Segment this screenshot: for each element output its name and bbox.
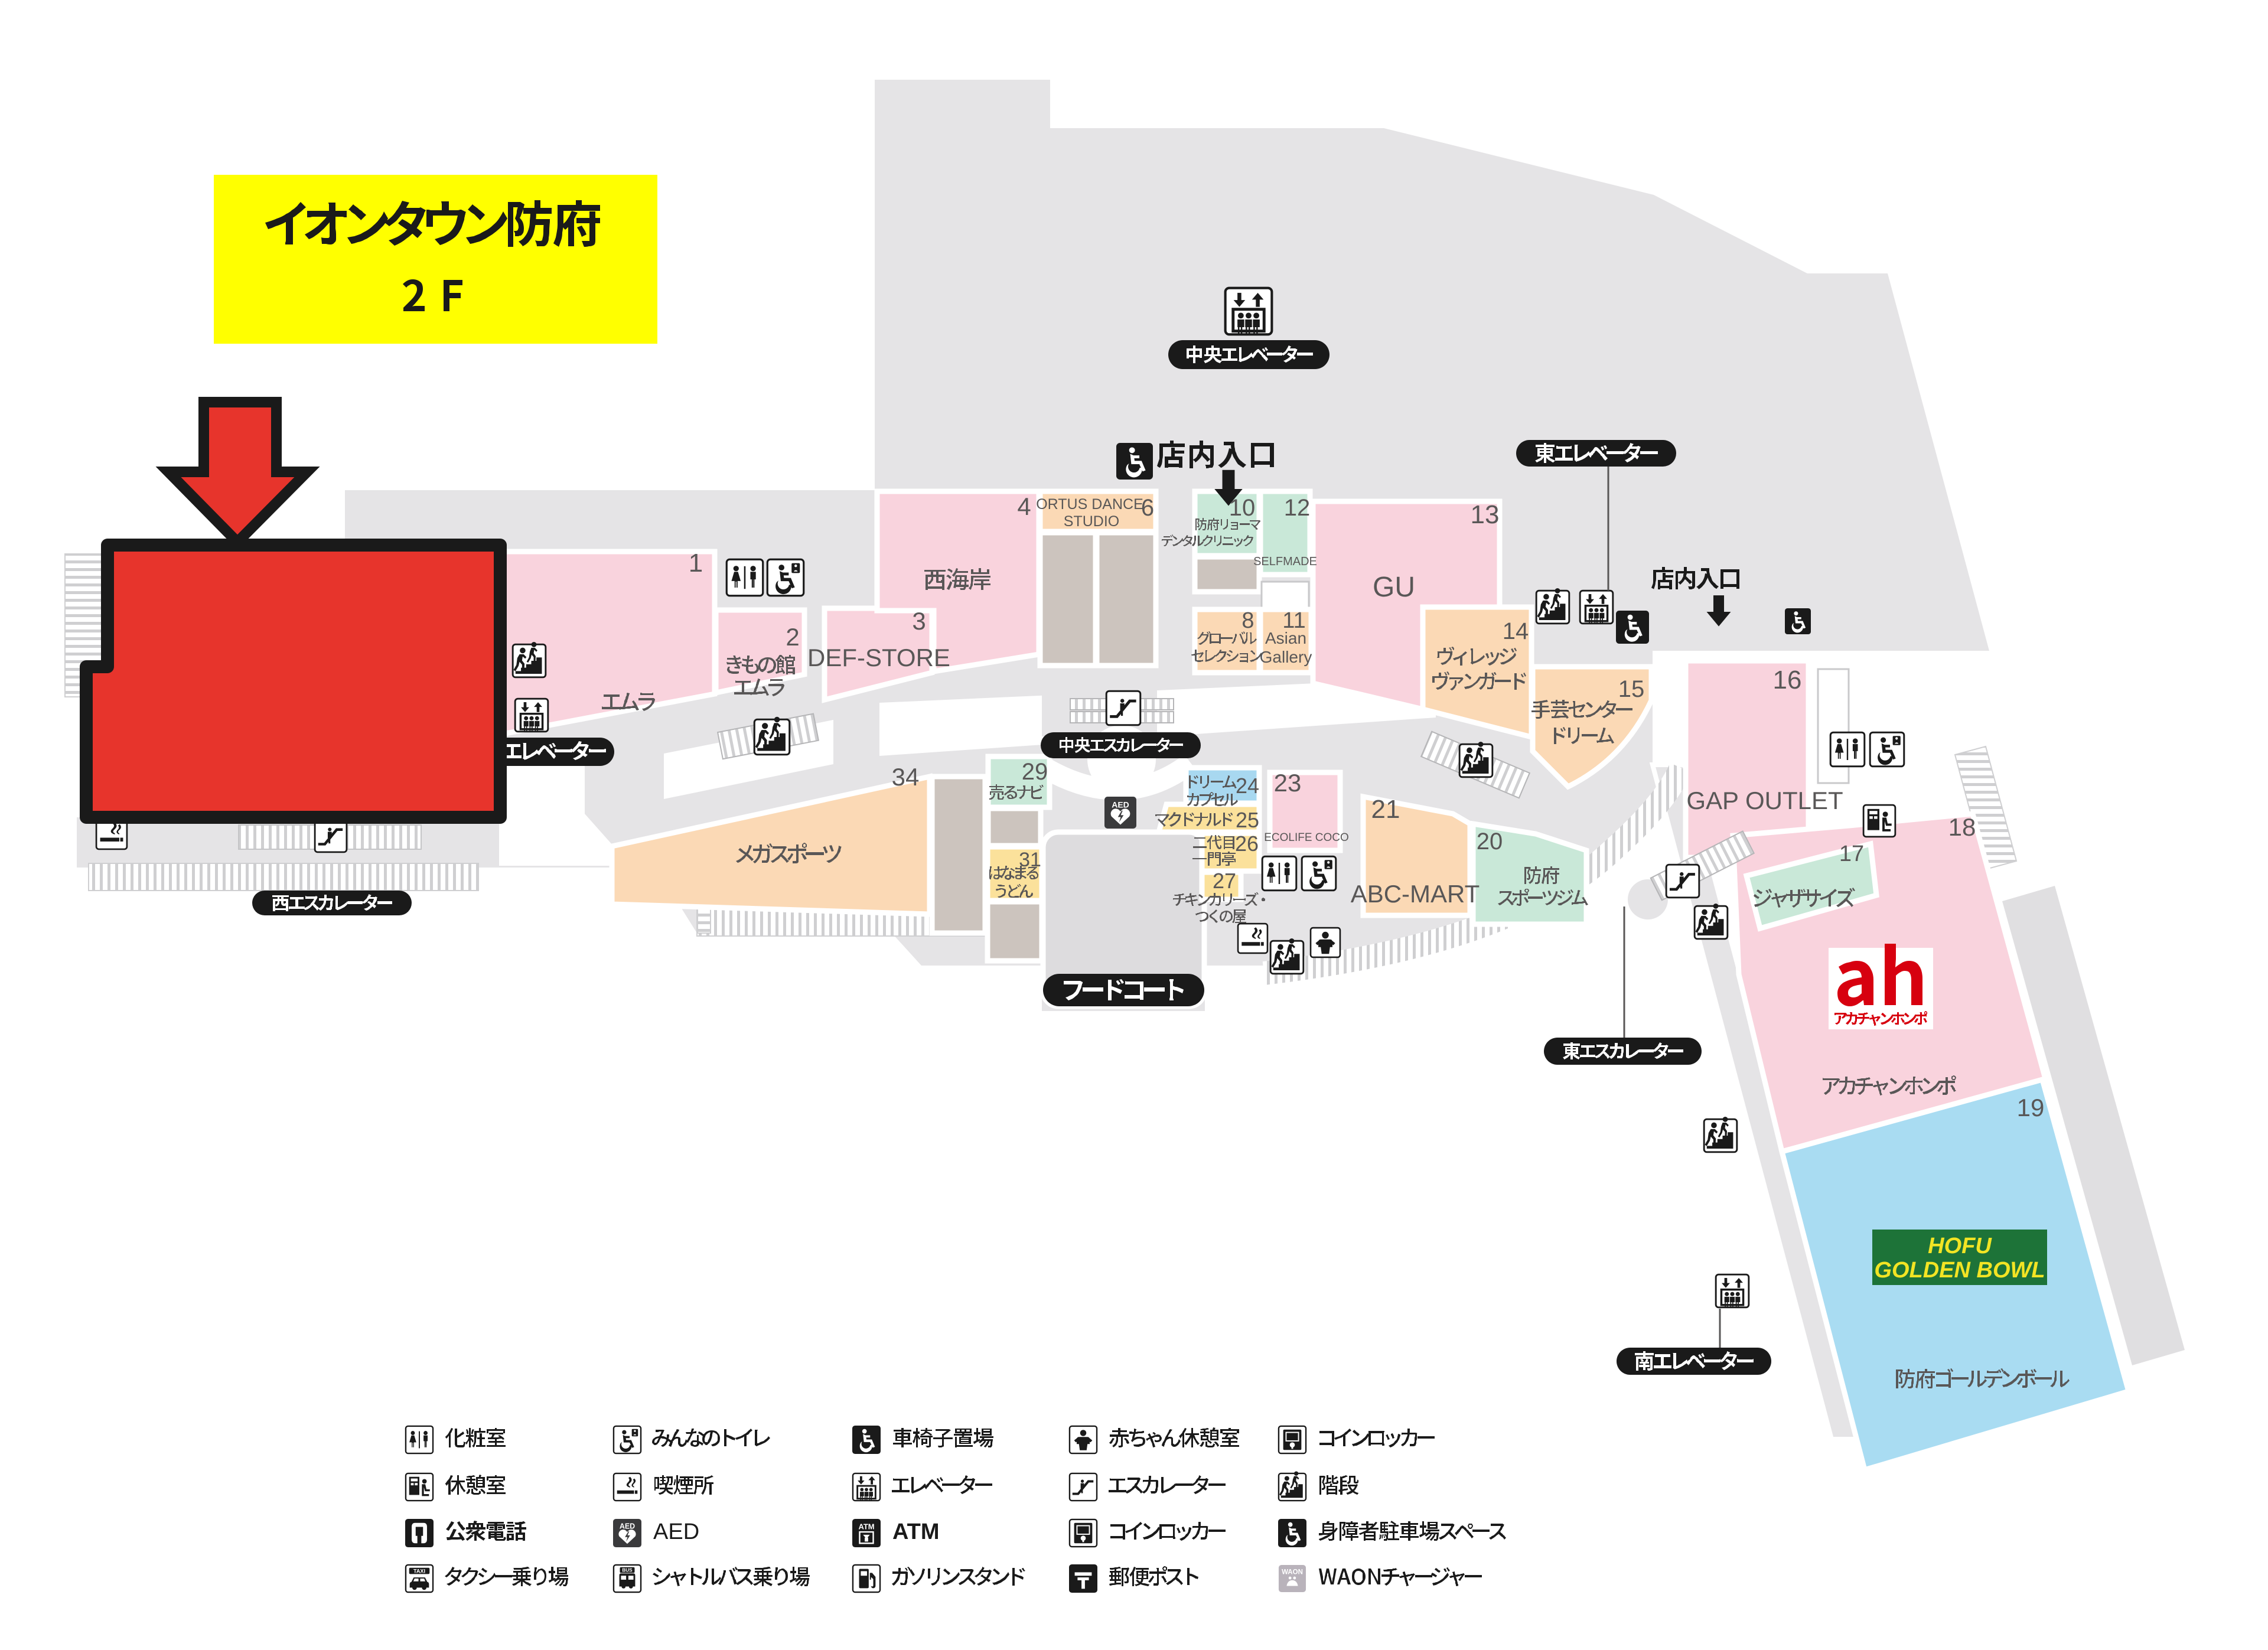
svg-text:23: 23 bbox=[1274, 769, 1302, 797]
svg-text:HOFU: HOFU bbox=[1928, 1234, 1992, 1258]
svg-text:25: 25 bbox=[1236, 808, 1259, 832]
svg-text:1: 1 bbox=[689, 549, 703, 578]
svg-text:26: 26 bbox=[1235, 831, 1259, 856]
svg-text:20: 20 bbox=[1477, 829, 1503, 855]
svg-text:29: 29 bbox=[1022, 759, 1048, 785]
svg-text:Gallery: Gallery bbox=[1260, 648, 1312, 666]
svg-text:Asian: Asian bbox=[1265, 629, 1306, 647]
svg-text:8: 8 bbox=[1241, 608, 1254, 633]
svg-text:24: 24 bbox=[1236, 774, 1259, 798]
svg-text:GOLDEN BOWL: GOLDEN BOWL bbox=[1874, 1258, 2045, 1283]
svg-text:AED: AED bbox=[653, 1519, 699, 1544]
svg-text:SELFMADE: SELFMADE bbox=[1253, 555, 1317, 568]
svg-text:15: 15 bbox=[1618, 676, 1645, 702]
svg-text:27: 27 bbox=[1213, 869, 1236, 893]
svg-text:13: 13 bbox=[1471, 500, 1500, 529]
svg-text:DEF-STORE: DEF-STORE bbox=[807, 644, 950, 671]
svg-text:17: 17 bbox=[1839, 842, 1864, 866]
svg-text:14: 14 bbox=[1503, 618, 1529, 644]
svg-text:21: 21 bbox=[1371, 795, 1400, 824]
svg-text:18: 18 bbox=[1948, 813, 1976, 841]
svg-text:2: 2 bbox=[786, 623, 799, 651]
svg-text:STUDIO: STUDIO bbox=[1064, 513, 1119, 530]
svg-text:ATM: ATM bbox=[892, 1519, 940, 1544]
svg-text:34: 34 bbox=[892, 763, 920, 791]
svg-text:GU: GU bbox=[1373, 572, 1415, 603]
svg-text:4: 4 bbox=[1017, 493, 1031, 520]
svg-text:16: 16 bbox=[1773, 666, 1802, 694]
svg-text:ORTUS DANCE: ORTUS DANCE bbox=[1036, 496, 1143, 513]
svg-text:3: 3 bbox=[912, 607, 926, 635]
svg-text:ECOLIFE COCO: ECOLIFE COCO bbox=[1264, 831, 1349, 844]
svg-text:GAP OUTLET: GAP OUTLET bbox=[1686, 787, 1843, 814]
svg-text:19: 19 bbox=[2017, 1094, 2045, 1121]
svg-text:12: 12 bbox=[1284, 495, 1311, 521]
svg-text:ABC-MART: ABC-MART bbox=[1351, 880, 1480, 908]
svg-text:10: 10 bbox=[1229, 495, 1256, 521]
